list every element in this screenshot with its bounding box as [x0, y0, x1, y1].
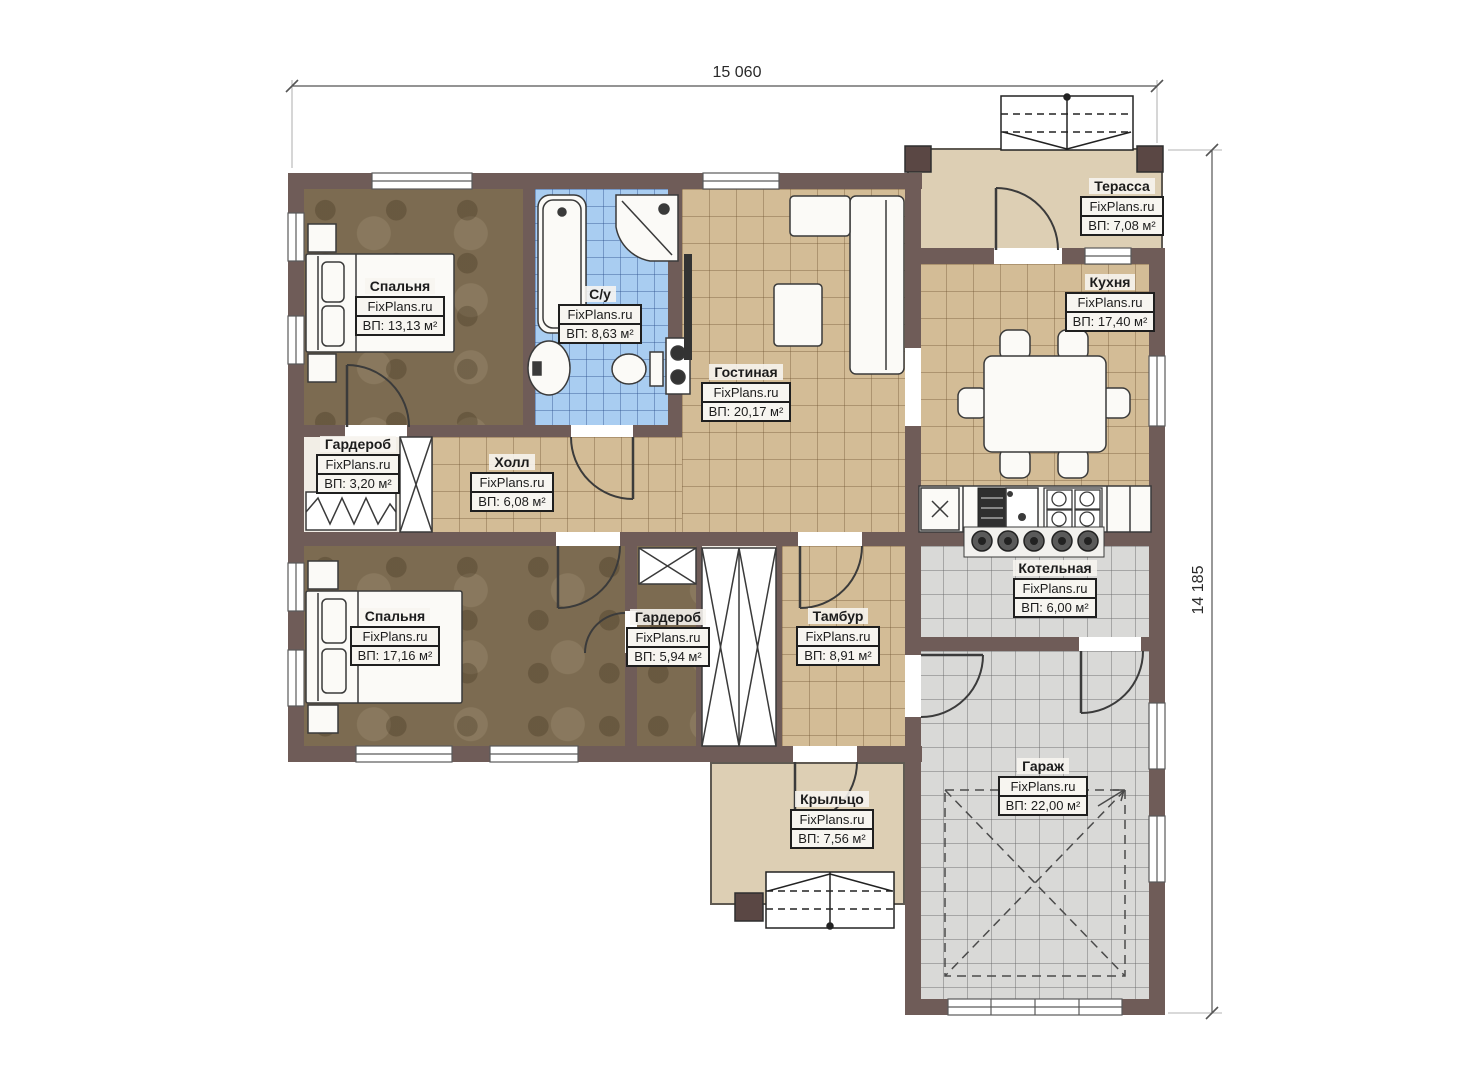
watermark: FixPlans.ru	[357, 298, 444, 317]
room-label-wardrobe1: Гардероб FixPlans.ru ВП: 3,20 м²	[298, 436, 418, 494]
watermark: FixPlans.ru	[1067, 294, 1154, 313]
room-area: ВП: 7,56 м²	[792, 830, 871, 847]
room-area: ВП: 6,08 м²	[472, 493, 551, 510]
watermark: FixPlans.ru	[792, 811, 871, 830]
room-area: ВП: 8,91 м²	[798, 647, 877, 664]
dimension-height-label: 14 185	[1190, 515, 1210, 665]
watermark: FixPlans.ru	[798, 628, 877, 647]
dimension-width-label: 15 060	[662, 64, 812, 82]
room-area: ВП: 13,13 м²	[357, 317, 444, 334]
watermark: FixPlans.ru	[560, 306, 639, 325]
room-area: ВП: 7,08 м²	[1082, 217, 1161, 234]
room-info-box: FixPlans.ru ВП: 6,08 м²	[470, 472, 553, 512]
room-name: Спальня	[360, 608, 430, 624]
room-label-bedroom2: Спальня FixPlans.ru ВП: 17,16 м²	[335, 608, 455, 666]
watermark: FixPlans.ru	[318, 456, 397, 475]
room-area: ВП: 5,94 м²	[628, 648, 707, 665]
room-info-box: FixPlans.ru ВП: 22,00 м²	[998, 776, 1089, 816]
room-living-floor	[682, 189, 905, 532]
watermark: FixPlans.ru	[1015, 580, 1094, 599]
room-label-bathroom: С/у FixPlans.ru ВП: 8,63 м²	[540, 286, 660, 344]
room-label-kitchen: Кухня FixPlans.ru ВП: 17,40 м²	[1050, 274, 1170, 332]
room-area: ВП: 17,16 м²	[352, 647, 439, 664]
room-label-bedroom1: Спальня FixPlans.ru ВП: 13,13 м²	[340, 278, 460, 336]
room-area: ВП: 20,17 м²	[703, 403, 790, 420]
room-info-box: FixPlans.ru ВП: 17,16 м²	[350, 626, 441, 666]
room-name: Гардероб	[320, 436, 396, 452]
room-name: Холл	[489, 454, 534, 470]
room-name: Гостиная	[709, 364, 782, 380]
room-area: ВП: 8,63 м²	[560, 325, 639, 342]
room-info-box: FixPlans.ru ВП: 8,63 м²	[558, 304, 641, 344]
room-name: Кухня	[1085, 274, 1136, 290]
room-info-box: FixPlans.ru ВП: 7,08 м²	[1080, 196, 1163, 236]
room-label-terrace: Терасса FixPlans.ru ВП: 7,08 м²	[1062, 178, 1182, 236]
room-info-box: FixPlans.ru ВП: 8,91 м²	[796, 626, 879, 666]
room-name: Крыльцо	[795, 791, 869, 807]
room-name: Терасса	[1089, 178, 1155, 194]
room-info-box: FixPlans.ru ВП: 3,20 м²	[316, 454, 399, 494]
room-name: Спальня	[365, 278, 435, 294]
room-label-garage: Гараж FixPlans.ru ВП: 22,00 м²	[983, 758, 1103, 816]
room-name: С/у	[584, 286, 616, 302]
room-area: ВП: 3,20 м²	[318, 475, 397, 492]
room-area: ВП: 6,00 м²	[1015, 599, 1094, 616]
room-label-living: Гостиная FixPlans.ru ВП: 20,17 м²	[686, 364, 806, 422]
floorplan-graphics	[0, 0, 1473, 1080]
room-label-hall: Холл FixPlans.ru ВП: 6,08 м²	[455, 454, 569, 512]
terrace-stairs-icon	[1001, 94, 1133, 150]
watermark: FixPlans.ru	[472, 474, 551, 493]
room-name: Гардероб	[630, 609, 706, 625]
floor-plan-canvas: 15 060 14 185 Спальня FixPlans.ru ВП: 13…	[0, 0, 1473, 1080]
room-label-porch: Крыльцо FixPlans.ru ВП: 7,56 м²	[772, 791, 892, 849]
room-info-box: FixPlans.ru ВП: 6,00 м²	[1013, 578, 1096, 618]
room-info-box: FixPlans.ru ВП: 20,17 м²	[701, 382, 792, 422]
room-info-box: FixPlans.ru ВП: 17,40 м²	[1065, 292, 1156, 332]
watermark: FixPlans.ru	[703, 384, 790, 403]
room-name: Гараж	[1017, 758, 1069, 774]
watermark: FixPlans.ru	[1082, 198, 1161, 217]
room-info-box: FixPlans.ru ВП: 13,13 м²	[355, 296, 446, 336]
room-name: Тамбур	[808, 608, 869, 624]
room-area: ВП: 17,40 м²	[1067, 313, 1154, 330]
room-info-box: FixPlans.ru ВП: 7,56 м²	[790, 809, 873, 849]
room-info-box: FixPlans.ru ВП: 5,94 м²	[626, 627, 709, 667]
watermark: FixPlans.ru	[628, 629, 707, 648]
room-name: Котельная	[1013, 560, 1096, 576]
room-label-boiler: Котельная FixPlans.ru ВП: 6,00 м²	[995, 560, 1115, 618]
room-area: ВП: 22,00 м²	[1000, 797, 1087, 814]
room-label-wardrobe2: Гардероб FixPlans.ru ВП: 5,94 м²	[612, 609, 724, 667]
watermark: FixPlans.ru	[352, 628, 439, 647]
room-label-tambour: Тамбур FixPlans.ru ВП: 8,91 м²	[778, 608, 898, 666]
room-garage-floor	[919, 651, 1151, 999]
watermark: FixPlans.ru	[1000, 778, 1087, 797]
